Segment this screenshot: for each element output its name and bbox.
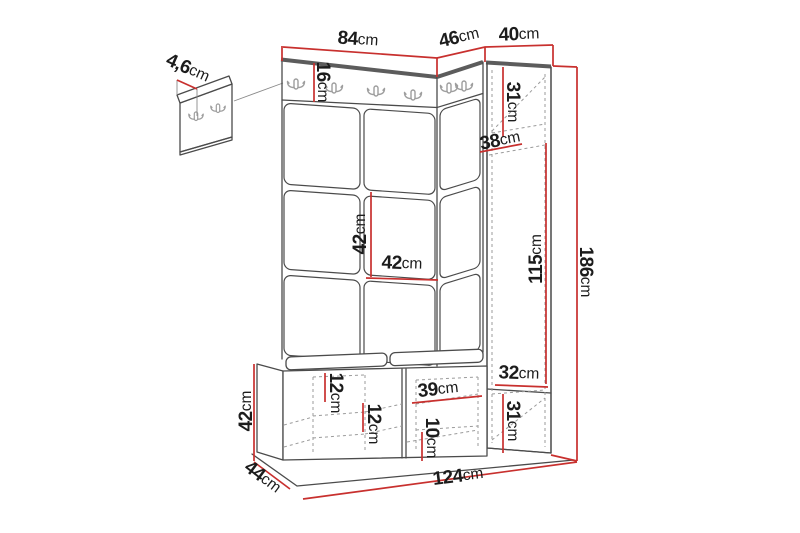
dimension-label-width-column: 40cm [498,23,540,45]
dimension-line-top-widths [283,45,553,58]
dimension-label-column-bottom-height: 31cm [503,401,524,442]
dimension-line-total-height [551,66,577,461]
padded-panel-left-section [281,60,437,367]
dimension-label-bench-height: 42cm [236,391,257,432]
dimension-label-panel-depth: 4,6cm [163,49,213,87]
hook-rail-top [281,60,437,78]
dimension-label-shelf-gap-a: 12cm [326,373,347,414]
diagram-canvas: 4,6cm 84cm 46cm 40cm 16cm 31cm 38cm 42cm… [0,0,800,533]
dimension-label-total-height: 186cm [576,247,597,298]
dimension-label-column-bottom-width: 32cm [498,362,540,384]
dimension-label-tile-width: 42cm [381,252,423,274]
coat-hook-icon [405,90,422,100]
dimension-label-shelf-gap-b: 12cm [364,404,385,445]
dimension-label-shelf-gap-right: 10cm [422,418,443,459]
dimension-label-total-width: 124cm [431,462,484,489]
dimension-label-rail-height: 16cm [313,62,334,103]
dimension-line-panel-depth [177,80,197,89]
dimension-label-door-height: 115cm [526,234,547,284]
dimension-label-column-upper: 31cm [503,82,524,123]
callout-line [234,83,283,101]
dimension-label-width-corner: 46cm [437,22,481,52]
padded-panel-corner-section [437,62,483,363]
furniture-dimension-diagram: 4,6cm 84cm 46cm 40cm 16cm 31cm 38cm 42cm… [0,0,800,533]
dimension-label-tile-height: 42cm [350,214,371,255]
dimension-label-width-left: 84cm [337,27,379,51]
bench-side-face [257,364,283,460]
coat-hook-icon [368,86,385,96]
coat-hook-icon [288,79,305,89]
